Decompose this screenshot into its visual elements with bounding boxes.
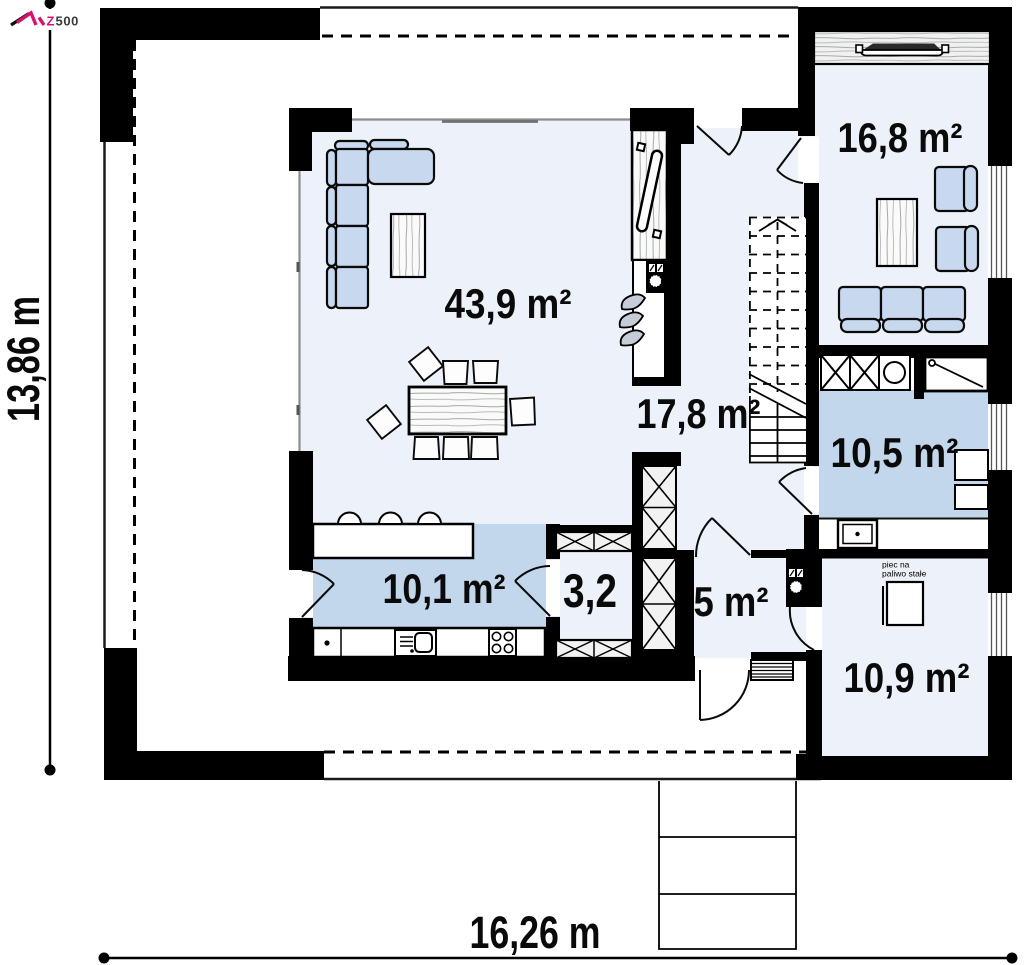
svg-text:5 m²: 5 m² <box>694 578 769 625</box>
svg-text:43,9 m²: 43,9 m² <box>445 280 572 327</box>
svg-text:3,2: 3,2 <box>563 564 617 617</box>
svg-text:10,5 m²: 10,5 m² <box>831 429 959 476</box>
svg-text:Z: Z <box>47 14 56 29</box>
svg-text:17,8 m²: 17,8 m² <box>637 390 761 437</box>
svg-text:500: 500 <box>56 14 80 29</box>
svg-text:10,9 m²: 10,9 m² <box>844 654 970 701</box>
svg-text:16,8 m²: 16,8 m² <box>838 114 963 161</box>
svg-text:paliwo stałe: paliwo stałe <box>882 569 927 579</box>
svg-text:10,1 m²: 10,1 m² <box>383 565 506 612</box>
svg-text:16,26 m: 16,26 m <box>470 907 601 958</box>
svg-text:13,86 m: 13,86 m <box>0 296 49 422</box>
